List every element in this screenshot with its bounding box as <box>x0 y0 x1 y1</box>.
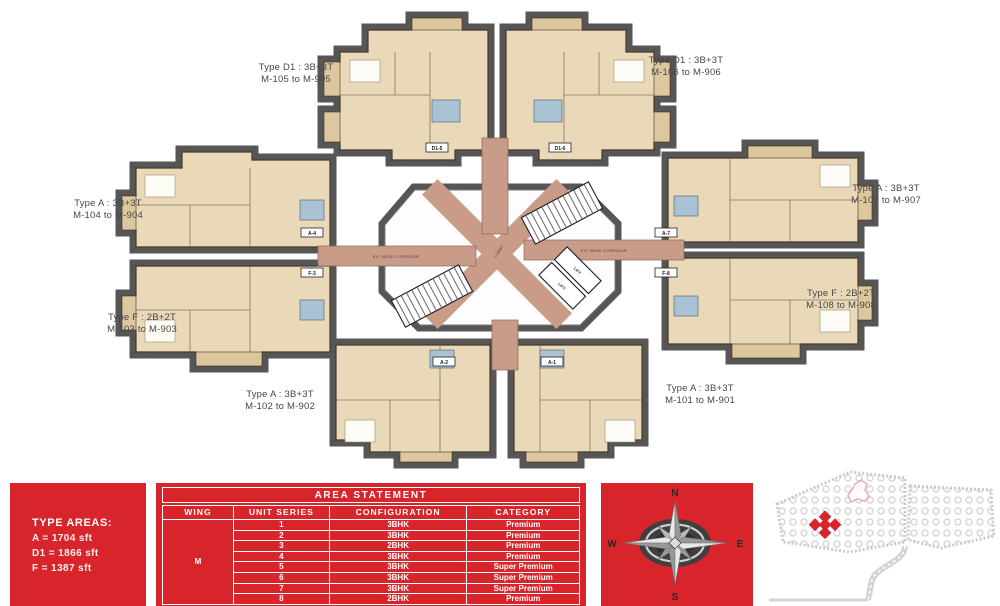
unit-tag-a-1: A-1 <box>541 357 563 366</box>
svg-text:A-7: A-7 <box>662 231 670 237</box>
corridor-south-arm <box>492 320 518 370</box>
unit-type-label-m103: Type F : 2B+2T M-103 to M-903 <box>107 312 177 336</box>
label-range: M-101 to M-901 <box>665 395 735 407</box>
cell-configuration: 3BHK <box>329 530 467 541</box>
unit-type-label-m106: Type D1 : 3B+3T M-106 to M-906 <box>649 55 724 79</box>
area-statement-title: AREA STATEMENT <box>162 487 580 503</box>
col-unit-series: UNIT SERIES <box>233 506 329 520</box>
label-range: M-102 to M-902 <box>245 401 315 413</box>
type-areas-title: TYPE AREAS: <box>32 517 138 529</box>
cell-unit-series: 6 <box>233 572 329 583</box>
cell-unit-series: 3 <box>233 541 329 552</box>
site-road <box>868 546 905 600</box>
label-type: Type A : 3B+3T <box>851 183 921 195</box>
cell-category: Premium <box>467 551 580 562</box>
cell-category: Premium <box>467 520 580 531</box>
unit-tag-f-3: F-3 <box>301 268 323 277</box>
cell-category: Premium <box>467 541 580 552</box>
corridors: 6'6" WIDE CORRIDOR 6'6" WIDE CORRIDOR LO… <box>318 138 684 370</box>
unit-shape-d1-5 <box>324 18 488 160</box>
svg-text:A-1: A-1 <box>548 360 556 366</box>
unit-type-label-m108: Type F : 2B+2T M-108 to M-908 <box>806 288 876 312</box>
label-type: Type A : 3B+3T <box>73 198 143 210</box>
label-range: M-108 to M-908 <box>806 300 876 312</box>
label-type: Type A : 3B+3T <box>245 389 315 401</box>
table-row: M 1 3BHK Premium <box>163 520 580 531</box>
unit-tag-a-4: A-4 <box>301 228 323 237</box>
compass-box: N S W E <box>601 483 753 606</box>
type-area-d1: D1 = 1866 sft <box>32 548 138 559</box>
label-range: M-105 to M-905 <box>259 74 334 86</box>
corridor-north-arm <box>482 138 508 234</box>
cell-category: Premium <box>467 530 580 541</box>
cell-unit-series: 5 <box>233 562 329 573</box>
cell-unit-series: 7 <box>233 583 329 594</box>
cell-configuration: 2BHK <box>329 541 467 552</box>
col-category: CATEGORY <box>467 506 580 520</box>
type-areas-box: TYPE AREAS: A = 1704 sft D1 = 1866 sft F… <box>10 483 146 606</box>
unit-tag-a-2: A-2 <box>433 357 455 366</box>
cell-unit-series: 4 <box>233 551 329 562</box>
compass-n: N <box>671 488 678 499</box>
svg-text:F-3: F-3 <box>308 271 316 277</box>
cell-unit-series: 1 <box>233 520 329 531</box>
label-type: Type D1 : 3B+3T <box>259 62 334 74</box>
col-configuration: CONFIGURATION <box>329 506 467 520</box>
compass-s: S <box>672 592 679 603</box>
label-range: M-104 to M-904 <box>73 210 143 222</box>
svg-text:A-2: A-2 <box>440 360 448 366</box>
unit-tag-f-8: F-8 <box>655 268 677 277</box>
cell-configuration: 3BHK <box>329 551 467 562</box>
unit-type-label-m102: Type A : 3B+3T M-102 to M-902 <box>245 389 315 413</box>
label-range: M-103 to M-903 <box>107 324 177 336</box>
unit-type-label-m105: Type D1 : 3B+3T M-105 to M-905 <box>259 62 334 86</box>
label-range: M-106 to M-906 <box>649 67 724 79</box>
cell-category: Super Premium <box>467 583 580 594</box>
header-row: WING UNIT SERIES CONFIGURATION CATEGORY <box>163 506 580 520</box>
svg-text:A-4: A-4 <box>308 231 316 237</box>
cell-category: Super Premium <box>467 572 580 583</box>
label-type: Type F : 2B+2T <box>806 288 876 300</box>
type-area-a: A = 1704 sft <box>32 533 138 544</box>
cell-category: Premium <box>467 594 580 605</box>
cell-configuration: 3BHK <box>329 562 467 573</box>
svg-text:D1-6: D1-6 <box>555 146 566 152</box>
cell-configuration: 3BHK <box>329 572 467 583</box>
cell-unit-series: 2 <box>233 530 329 541</box>
cell-category: Super Premium <box>467 562 580 573</box>
col-wing: WING <box>163 506 234 520</box>
tower-floor-plan: 6'6" WIDE CORRIDOR 6'6" WIDE CORRIDOR LO… <box>0 0 1000 470</box>
site-key-map <box>755 462 1000 606</box>
compass-cardinal-points <box>623 501 727 585</box>
unit-tag-d1-5: D1-5 <box>426 143 448 152</box>
label-range: M-107 to M-907 <box>851 195 921 207</box>
unit-type-label-m104: Type A : 3B+3T M-104 to M-904 <box>73 198 143 222</box>
unit-shape-d1-6 <box>506 18 670 160</box>
type-area-f: F = 1387 sft <box>32 563 138 574</box>
compass-rose-icon: N S W E <box>601 483 753 606</box>
cell-unit-series: 8 <box>233 594 329 605</box>
label-type: Type D1 : 3B+3T <box>649 55 724 67</box>
svg-text:D1-5: D1-5 <box>432 146 443 152</box>
area-statement-table: WING UNIT SERIES CONFIGURATION CATEGORY … <box>162 505 580 605</box>
unit-type-label-m107: Type A : 3B+3T M-107 to M-907 <box>851 183 921 207</box>
label-type: Type F : 2B+2T <box>107 312 177 324</box>
floor-plan-page: 6'6" WIDE CORRIDOR 6'6" WIDE CORRIDOR LO… <box>0 0 1000 606</box>
corridor-label-west: 6'6" WIDE CORRIDOR <box>373 254 419 259</box>
compass-w: W <box>607 539 617 550</box>
unit-type-label-m101: Type A : 3B+3T M-101 to M-901 <box>665 383 735 407</box>
cell-configuration: 2BHK <box>329 594 467 605</box>
area-statement-box: AREA STATEMENT WING UNIT SERIES CONFIGUR… <box>156 483 586 606</box>
cell-configuration: 3BHK <box>329 520 467 531</box>
unit-shape-a-7 <box>668 146 872 242</box>
corridor-label-east: 6'6" WIDE CORRIDOR <box>581 248 627 253</box>
svg-text:F-8: F-8 <box>662 271 670 277</box>
cell-configuration: 3BHK <box>329 583 467 594</box>
wing-cell: M <box>163 520 234 605</box>
unit-tag-a-7: A-7 <box>655 228 677 237</box>
compass-e: E <box>737 539 744 550</box>
unit-tag-d1-6: D1-6 <box>549 143 571 152</box>
label-type: Type A : 3B+3T <box>665 383 735 395</box>
